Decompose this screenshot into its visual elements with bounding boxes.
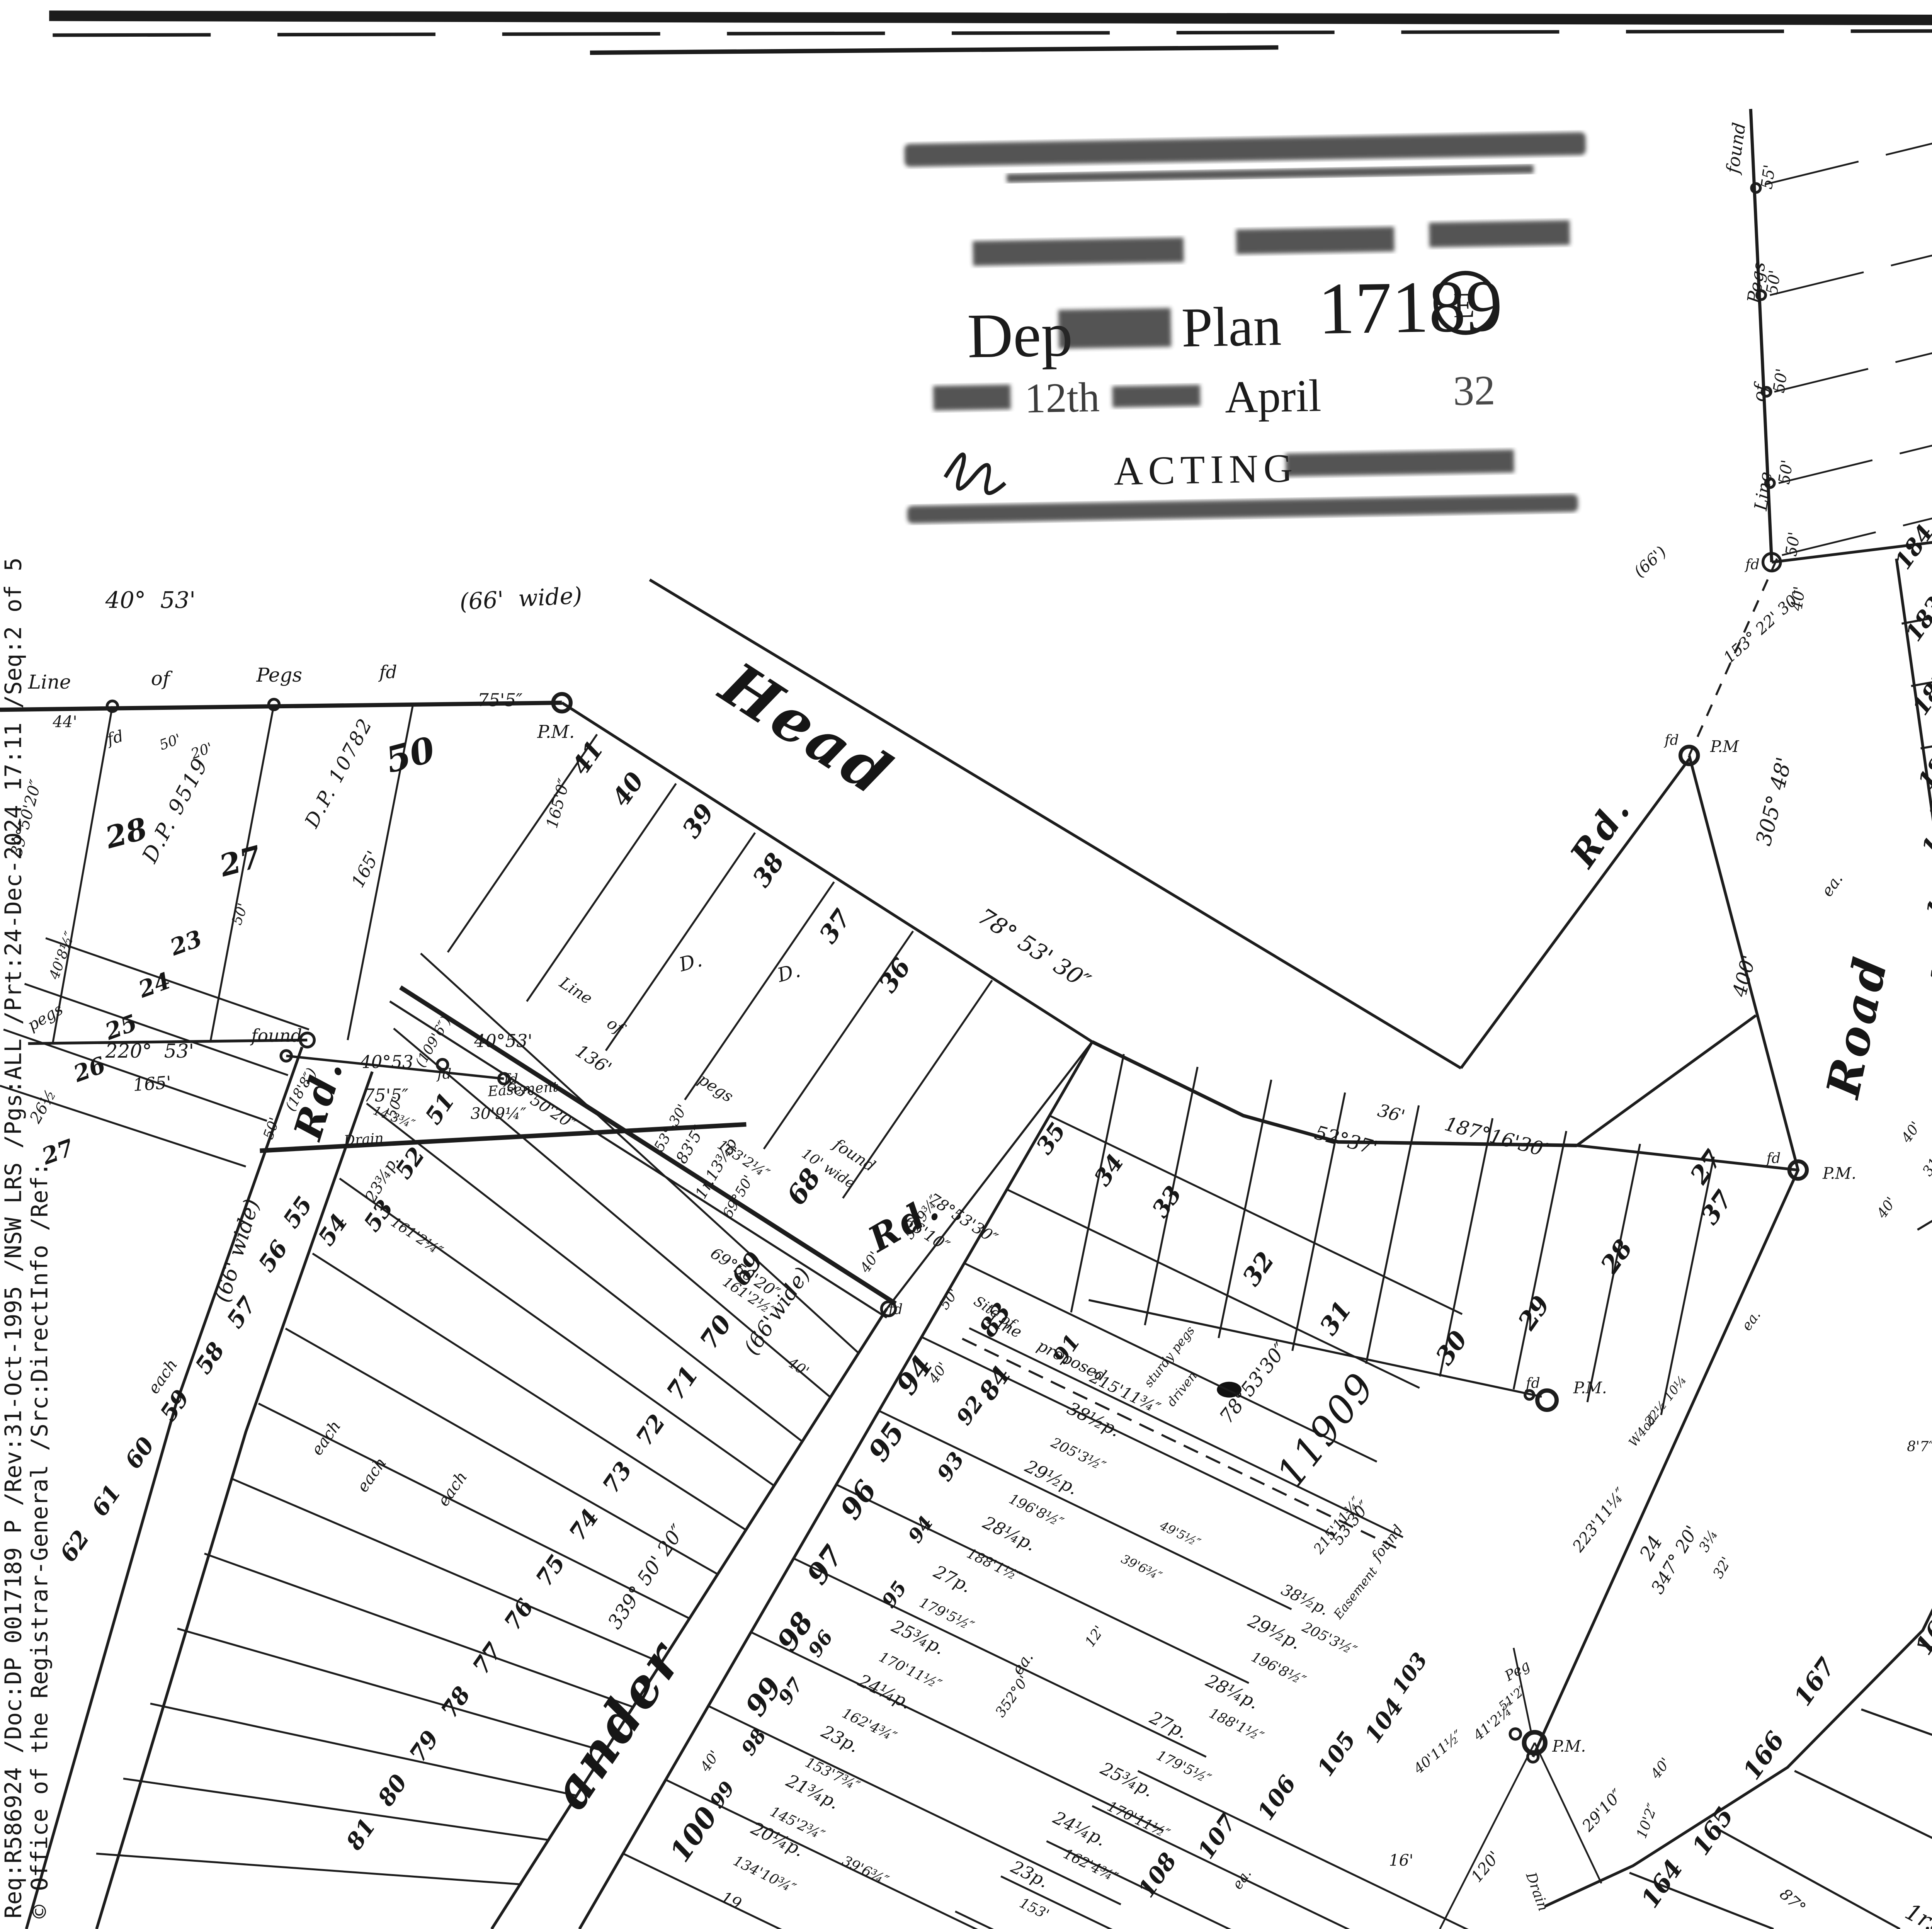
lot-line (1219, 1080, 1271, 1338)
stamp-month: April (1225, 370, 1322, 422)
map-label: 29½p. (1022, 1456, 1082, 1499)
map-label: P.M. (537, 721, 575, 742)
map-label: 40° 53' (105, 587, 196, 613)
map-label: 305° 48' (1751, 755, 1796, 848)
map-label: 50' (1769, 367, 1791, 394)
map-label: 182 (1907, 665, 1932, 720)
map-label: ea. (1229, 1866, 1255, 1893)
map-label: 38½p. (1278, 1580, 1332, 1619)
map-label: 352°0' (992, 1672, 1032, 1720)
map-label: 167 (1788, 1652, 1842, 1711)
map-label: D.P. 9519 (137, 753, 213, 867)
survey-marks (107, 184, 1932, 1762)
map-label: 72 (631, 1409, 671, 1451)
map-label: fd (436, 1066, 452, 1082)
map-label: 164 (1635, 1854, 1689, 1913)
map-label: 39 (677, 799, 720, 844)
map-label: 165' (132, 1072, 172, 1095)
map-label: 134'10¾″ (731, 1852, 799, 1897)
lot-line (1794, 1771, 1932, 1868)
map-label: P.M. (1822, 1164, 1856, 1183)
map-label: 73 (597, 1457, 637, 1498)
margin-line-2: © Office of the Registrar-General /Src:D… (26, 1162, 53, 1919)
map-label: 30'9¼″ (471, 1104, 527, 1123)
map-label: driven (1164, 1369, 1200, 1409)
map-label: 170'11½″ (1105, 1798, 1173, 1842)
map-label: 74 (564, 1504, 604, 1546)
map-label: found (1722, 121, 1750, 176)
map-label: 165 (1686, 1802, 1740, 1861)
lot-line (1514, 1131, 1566, 1389)
map-label: 40' (1898, 1118, 1924, 1146)
map-label: 79 (404, 1726, 444, 1767)
map-label: 50' (1762, 269, 1784, 296)
map-label: 39'6¾″ (1119, 1551, 1165, 1584)
map-label: 62 (54, 1525, 95, 1567)
stamp-circle-letter: E (1453, 286, 1475, 325)
map-label: 168 (1909, 1602, 1932, 1660)
map-label: 40' (784, 1354, 812, 1380)
map-label: 104 (1359, 1693, 1408, 1748)
lot-line (177, 1629, 606, 1752)
map-label: 166 (1737, 1726, 1791, 1785)
map-label: 40°53 (360, 1052, 413, 1072)
map-label: each (434, 1468, 471, 1510)
map-label: of (1748, 380, 1772, 403)
map-label: Drain (1522, 1869, 1552, 1913)
map-label: 34 (1089, 1149, 1129, 1191)
map-label: 196'8½″ (1249, 1648, 1309, 1689)
scan-top-edge (49, 16, 1932, 53)
lot-line (150, 1704, 578, 1796)
map-label: 24 (1635, 1532, 1667, 1565)
map-label: 50' (228, 901, 252, 927)
map-label: (66' wide) (459, 582, 583, 615)
lot-line (685, 882, 834, 1100)
map-label: 10'2″ (1633, 1801, 1661, 1841)
map-label: 25¾p. (888, 1616, 948, 1659)
map-label: 99 (705, 1777, 739, 1812)
map-label: 8'7″ (1907, 1438, 1932, 1454)
map-label: 26½ (26, 1086, 60, 1126)
map-label: 315 (1919, 1148, 1932, 1179)
map-label: fd (378, 662, 397, 682)
map-label: 30 (1430, 1326, 1473, 1371)
map-label: 29 (1512, 1291, 1556, 1335)
map-label: 27 (1684, 1145, 1728, 1189)
stamp-word-plan: Plan (1181, 295, 1282, 359)
map-label: 220° 53' (105, 1040, 194, 1062)
map-label: 165'0″ (543, 776, 573, 830)
map-label: 179'5½″ (1154, 1747, 1214, 1787)
map-label: 93 (932, 1448, 969, 1486)
map-label: 44' (52, 713, 77, 731)
map-label: 55 (277, 1192, 318, 1233)
map-label: 108 (1133, 1848, 1182, 1902)
map-label: 52°37' (1312, 1121, 1380, 1160)
map-label: 80 (372, 1769, 412, 1811)
map-label: 100 (663, 1801, 724, 1868)
map-label: 40' (1647, 1754, 1673, 1782)
map-label: 77 (467, 1638, 507, 1679)
map-label: Easement (1330, 1564, 1380, 1622)
lot-line (1770, 199, 1932, 295)
map-label: fd (1765, 1150, 1781, 1167)
map-label: 180 (1916, 806, 1932, 861)
map-label: 38½p. (1064, 1398, 1124, 1441)
map-label: 49'5½″ (1157, 1518, 1203, 1550)
map-label: 12' (1082, 1623, 1107, 1650)
map-label: 87° (1776, 1885, 1810, 1917)
map-label: 70 (694, 1310, 738, 1355)
map-label: fd (1525, 1375, 1540, 1391)
map-label: P.M (1710, 737, 1739, 756)
map-label: found (250, 1026, 302, 1046)
map-label: 29'10″ (1578, 1785, 1626, 1835)
road-right: Road (1816, 950, 1898, 1103)
map-label: 187°16'30″ (1442, 1112, 1553, 1162)
lot-line (1774, 295, 1932, 392)
map-label: 31 (1314, 1296, 1357, 1340)
map-label: 60 (119, 1432, 160, 1473)
map-label: 40°53' (474, 1031, 532, 1051)
map-label: 40'8½″ (46, 929, 78, 982)
map-label: 61 (86, 1480, 126, 1521)
map-label: D.P. 10782 (300, 714, 377, 832)
map-label: 24¼p. (1049, 1807, 1109, 1850)
map-label: 95 (862, 1417, 912, 1468)
lot-line (204, 1553, 634, 1707)
lot-line (1717, 1829, 1900, 1929)
map-label: 179 (1919, 869, 1932, 924)
lot-line (623, 1854, 1036, 1929)
map-label: 120' (1467, 1847, 1503, 1886)
map-label: D. (676, 948, 706, 976)
map-label: 56 (253, 1235, 293, 1277)
lot-line (1861, 1710, 1932, 1785)
lot-line (1779, 386, 1932, 483)
map-label: 25¾p. (1097, 1758, 1157, 1801)
map-label: pegs (695, 1070, 737, 1106)
map-label: 29½p. (1245, 1610, 1304, 1653)
map-label: 40' (1787, 585, 1809, 612)
road-link: Rd. (1562, 788, 1640, 876)
stamp-year: 32 (1452, 367, 1495, 414)
map-label: Easement (487, 1078, 559, 1100)
map-label: 40' (1873, 1194, 1900, 1222)
map-label: 179'5½″ (917, 1594, 977, 1635)
map-label: 205'3½″ (1299, 1618, 1360, 1659)
survey-plan-drawing: 40° 53'(66' wide)LineofPegsfd44'fd75'5″P… (0, 0, 1932, 1929)
map-label: 71 (661, 1361, 704, 1406)
map-label: Drain (343, 1130, 384, 1149)
map-label: Peg (1502, 1657, 1533, 1685)
lot-50: 50 (381, 729, 439, 781)
map-label: Line (1750, 470, 1776, 512)
map-label: pegs (24, 1000, 66, 1034)
map-label: P.M. (1552, 1737, 1586, 1755)
map-label: each (353, 1454, 390, 1496)
map-label: 81 (340, 1813, 381, 1855)
map-label: fd (1744, 556, 1760, 573)
map-label: of (604, 1014, 629, 1039)
map-label: 16' (1389, 1851, 1413, 1869)
map-label: 33 (1147, 1181, 1187, 1222)
map-label: 55' (1757, 163, 1779, 190)
map-label: 78 (435, 1682, 476, 1723)
map-label: 28¼p. (980, 1512, 1039, 1555)
margin-line-1: Req:R586924 /Doc:DP 0017189 P /Rev:31-Oc… (0, 558, 27, 1919)
map-label: Pegs (256, 664, 302, 686)
map-label: 400' (1728, 953, 1760, 999)
map-label: 58 (190, 1337, 230, 1379)
map-label: 32' (1709, 1554, 1735, 1581)
map-label: of (151, 667, 173, 690)
lot-line (1001, 1876, 1413, 1929)
map-label: 137 (1929, 99, 1932, 162)
map-label: 95 (877, 1577, 911, 1612)
map-label: P.M. (1573, 1378, 1607, 1397)
map-label: 188'1½″ (1207, 1704, 1267, 1745)
map-label: 54 (313, 1209, 353, 1250)
map-label: 94 (903, 1512, 937, 1547)
stamp-plan-number: 17189 (1317, 265, 1503, 350)
lot-line (955, 1912, 1368, 1929)
road-alexander: ander (539, 1630, 695, 1820)
map-label: each (308, 1417, 344, 1459)
map-label: 23 (166, 925, 206, 961)
lot-line (606, 833, 755, 1051)
map-label: 50' (1775, 459, 1796, 485)
map-label: 106 (1252, 1771, 1301, 1825)
map-label: 1r.18p. (1901, 1898, 1932, 1929)
map-label: fd (887, 1301, 903, 1318)
lot-line (96, 1854, 522, 1885)
map-label: 36' (1376, 1100, 1407, 1126)
map-label: fd (104, 726, 125, 749)
stamp-word-deposited: Dep (967, 299, 1073, 371)
map-label: 223'11¼″ (1568, 1484, 1630, 1556)
deposited-plan-stamp: Dep Plan 17189 E 12th April 32 ACTING (901, 132, 1592, 524)
map-label: ea. (1818, 870, 1847, 900)
stamp-word-acting: ACTING (1113, 446, 1298, 493)
map-label: 27p. (930, 1561, 975, 1597)
map-label: 76 (499, 1594, 539, 1635)
map-label: 103 (1387, 1648, 1432, 1698)
map-label: 51 (420, 1088, 460, 1129)
map-label: ea. (1738, 1307, 1764, 1334)
map-label: 38 (747, 848, 790, 893)
margin-registration-text: Req:R586924 /Doc:DP 0017189 P /Rev:31-Oc… (0, 558, 53, 1919)
map-label: 94 (890, 1350, 940, 1401)
map-label: 96 (834, 1475, 883, 1526)
map-label: 39'6¾″ (840, 1852, 891, 1889)
map-label: (66') (1630, 543, 1670, 581)
map-label: 24 (134, 967, 174, 1003)
map-label: 26 (70, 1051, 109, 1087)
map-label: 105 (1312, 1727, 1361, 1781)
map-label: fd (1663, 732, 1679, 748)
map-label: 75'5″ (478, 690, 522, 711)
lot-line (286, 1329, 718, 1575)
map-label: 161'2¼″ (388, 1213, 446, 1259)
map-label: 178 (1923, 936, 1932, 991)
map-label: 36 (873, 953, 917, 998)
map-label: 40 (606, 767, 650, 812)
map-label: found (1367, 1522, 1406, 1565)
map-label: 92 (951, 1391, 988, 1429)
map-label: 37 (814, 904, 857, 949)
map-label: 32 (1237, 1247, 1280, 1291)
lot-line (123, 1779, 549, 1840)
map-label: 40' (697, 1747, 723, 1775)
map-label: 98 (736, 1724, 770, 1759)
map-label: 28 (1595, 1234, 1638, 1279)
map-label: 27p. (1146, 1707, 1190, 1743)
scanned-deposited-plan-page: 40° 53'(66' wide)LineofPegsfd44'fd75'5″P… (0, 0, 1932, 1929)
map-label: 50' (157, 730, 183, 754)
map-label: (66' wide) (209, 1196, 264, 1305)
lot-line (1765, 88, 1932, 184)
stamp-signature-icon (945, 454, 1005, 494)
map-label: 40'11½″ (1410, 1727, 1466, 1777)
map-label: Line (556, 973, 596, 1008)
stamp-day: 12th (1024, 374, 1100, 422)
map-label: 37 (1695, 1185, 1738, 1230)
dp-11909: 11909 (1267, 1364, 1384, 1496)
map-label: Line (28, 671, 71, 693)
lot-27: 27 (216, 839, 265, 884)
map-label: 28¼p. (1202, 1670, 1262, 1713)
map-label: 339° 50' 20″ (603, 1521, 689, 1633)
map-label: 50' (1782, 531, 1803, 557)
